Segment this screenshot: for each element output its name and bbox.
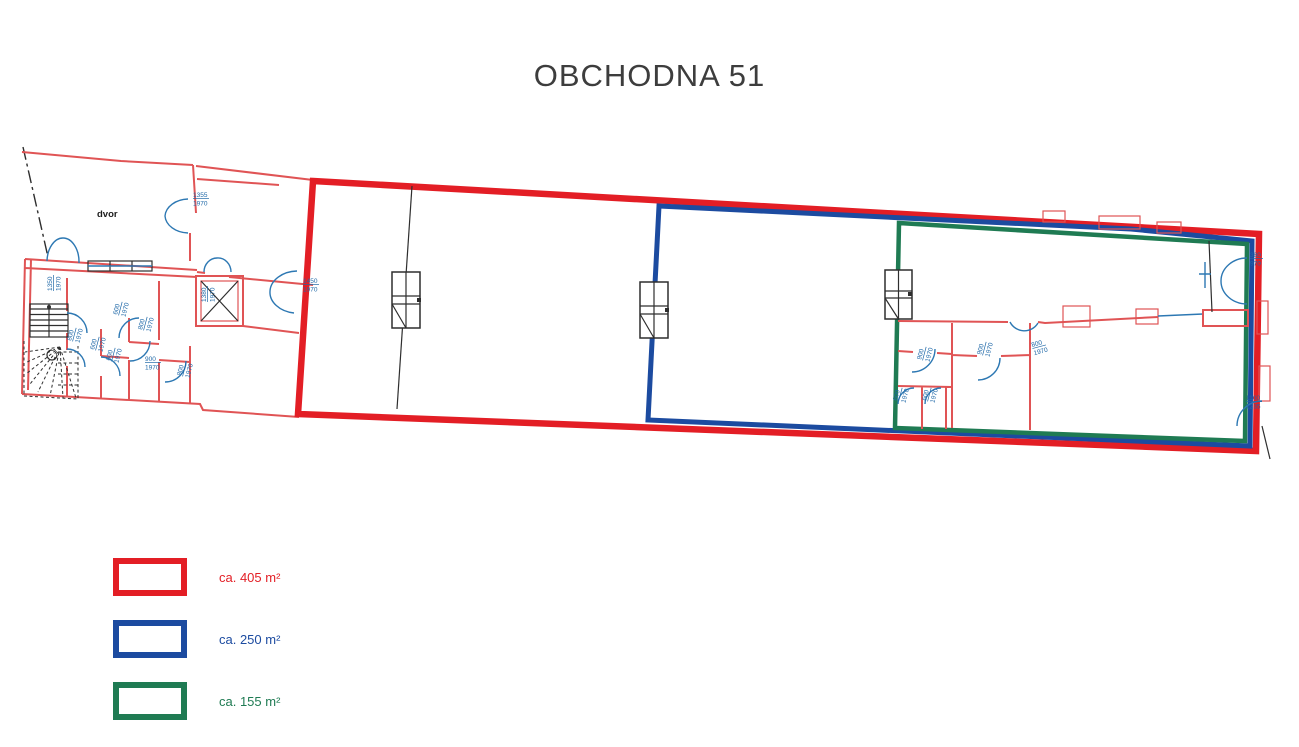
dim-bottom: 1235 [1246,404,1261,411]
dim-bottom: 1970 [303,287,318,294]
dim-bottom: 1970 [56,276,63,291]
dimension-label: 600 1970 [112,299,131,317]
blue-area-outline [648,206,1252,446]
legend: ca. 405 m² ca. 250 m² ca. 155 m² [113,558,280,744]
dim-bottom: 1970 [193,201,208,208]
door-arc [270,271,297,291]
window-sill-line [1158,314,1203,316]
door-arc [1221,281,1247,304]
legend-label-green: ca. 155 m² [219,694,280,709]
dim-top: 1355 [193,192,208,199]
column-dot [665,308,669,312]
window-niche [1063,306,1090,327]
dim-bottom: 1970 [145,365,160,372]
legend-item-red: ca. 405 m² [113,558,280,596]
stair-start-dot [47,305,51,309]
dim-top: 1450 [303,278,318,285]
dim-top: 1350 [47,276,54,291]
door-arc [47,238,63,261]
facade-pilaster [1259,366,1270,401]
column-marker [640,282,669,338]
dim-top: 380 [1250,252,1261,259]
column-dot [908,292,912,296]
property-boundary-line [23,147,48,257]
dim-bottom: 1970 [924,347,935,363]
door-arc [204,258,217,272]
dim-bottom: 1970 [113,348,124,364]
door-arc [978,358,1000,380]
window-strip [88,261,152,271]
wall-pier [1203,310,1248,326]
column-marker [392,272,421,328]
dimension-label: 1355 1970 [193,192,209,208]
dimension-label: 800 1970 [137,314,156,332]
legend-item-green: ca. 155 m² [113,682,280,720]
green-area-outline [895,223,1247,441]
dim-bottom: 1970 [74,328,85,344]
legend-item-blue: ca. 250 m² [113,620,280,658]
legend-label-blue: ca. 250 m² [219,632,280,647]
column-dot [417,298,421,302]
dimension-label: 900 1970 [145,356,161,372]
dimension-label: 800 1970 [66,325,85,343]
column-marker [885,270,912,319]
door-arc [270,291,294,313]
door-arc [1221,258,1247,281]
door-arc [1010,322,1038,331]
dim-bottom: 1970 [984,342,995,358]
door-leaf [1262,426,1270,459]
stairs-straight [30,304,68,337]
dimension-label: 1380 1970 [201,286,217,302]
door-arc [217,258,231,272]
interior-walls-green [898,317,1158,430]
door-arc [165,216,188,233]
winder-curl [47,350,57,360]
dim-top: 900 [145,356,156,363]
dim-bottom: 1970 [120,302,131,318]
legend-swatch-green [113,682,187,720]
dimension-label: 900 1970 [976,339,995,357]
partition-line [1209,241,1212,312]
door-arcs-green [898,322,1038,404]
dim-bottom: 1970 [97,337,108,353]
red-area-outline [298,181,1259,451]
legend-swatch-blue [113,620,187,658]
dimension-label: 1100 1235 [1246,395,1262,411]
scanned-floor-plan-page: OBCHODNA 51 [0,0,1299,747]
interior-walls-left [22,152,313,417]
sliding-door-mark [1199,262,1211,288]
dim-bottom: 1970 [900,388,911,404]
legend-swatch-red [113,558,187,596]
dim-bottom: 1970 [929,388,940,404]
dimension-label: 1350 1970 [47,275,63,291]
legend-label-red: ca. 405 m² [219,570,280,585]
dim-bottom: 970 [1250,261,1261,268]
dimension-label: 800 1970 [1031,338,1049,357]
dim-top: 1380 [201,287,208,302]
dimension-label: 600 1970 [89,334,108,352]
door-arcs-left [47,199,297,382]
door-arc [63,238,79,263]
dim-top: 1100 [1246,395,1260,402]
courtyard-label: dvor [97,209,118,220]
dim-bottom: 1970 [210,287,217,302]
dimension-label: 1450 1970 [303,278,319,294]
winder-treads [25,347,78,398]
dimension-label: 600 1970 [105,345,124,363]
door-arc [165,199,188,216]
dim-bottom: 1970 [145,317,156,333]
